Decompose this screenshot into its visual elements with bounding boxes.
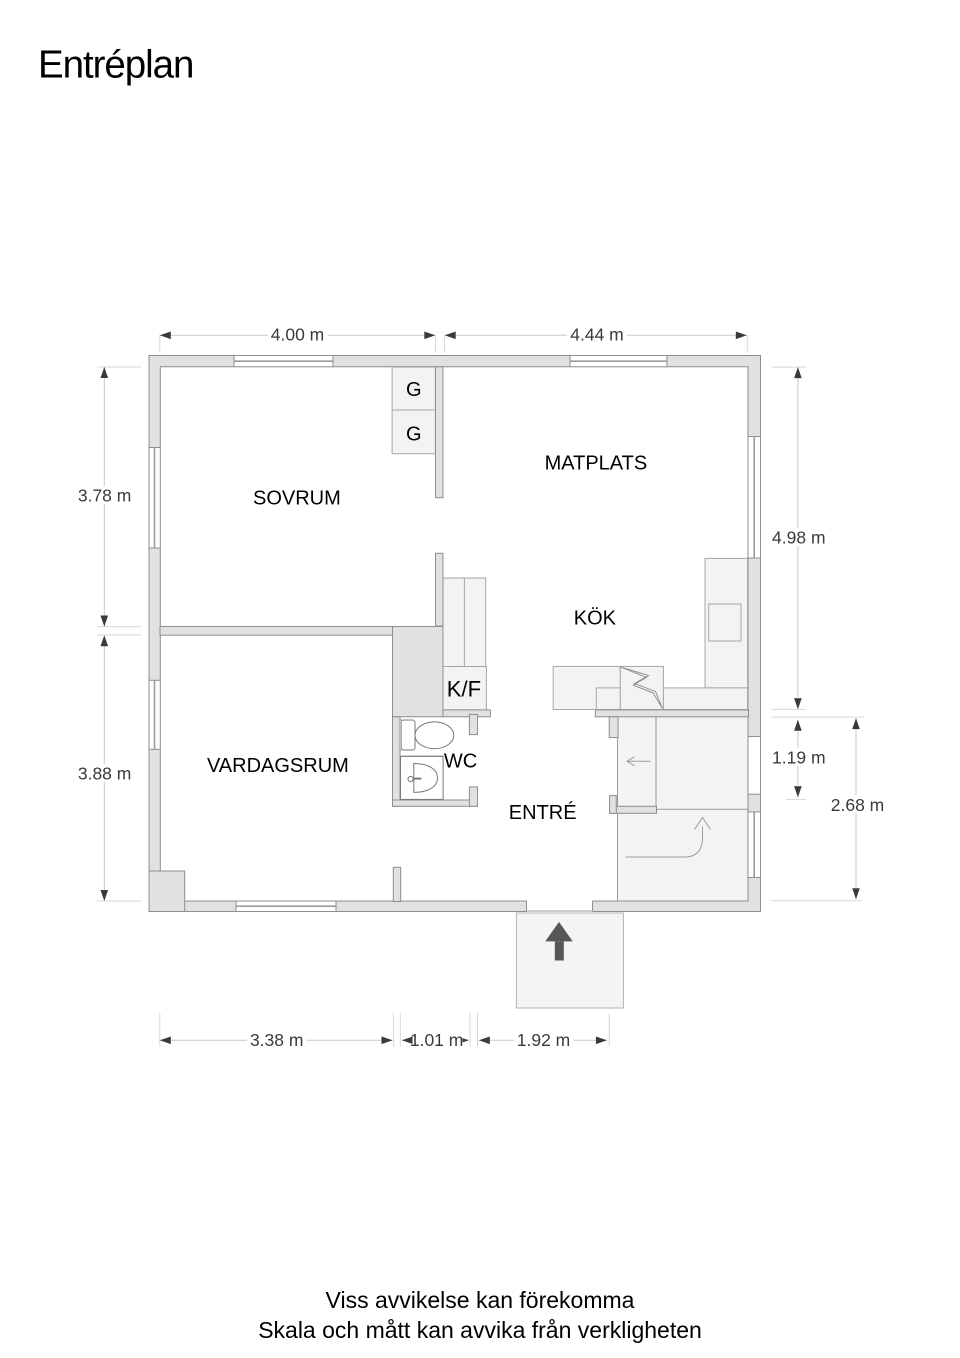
svg-text:K/F: K/F	[447, 676, 481, 701]
svg-text:4.44 m: 4.44 m	[570, 325, 624, 345]
svg-text:VARDAGSRUM: VARDAGSRUM	[207, 755, 349, 777]
svg-text:G: G	[406, 423, 422, 445]
svg-text:1.19 m: 1.19 m	[772, 748, 826, 768]
svg-text:1.92 m: 1.92 m	[517, 1030, 571, 1050]
svg-text:SOVRUM: SOVRUM	[253, 487, 341, 509]
svg-text:G: G	[406, 379, 422, 401]
svg-text:2.68 m: 2.68 m	[831, 795, 885, 815]
svg-text:KÖK: KÖK	[574, 607, 617, 629]
svg-text:3.78 m: 3.78 m	[78, 486, 132, 506]
svg-text:3.88 m: 3.88 m	[78, 764, 132, 784]
svg-text:ENTRÉ: ENTRÉ	[509, 801, 577, 824]
svg-text:Skala och mått kan avvika från: Skala och mått kan avvika från verklighe…	[258, 1317, 702, 1343]
svg-text:Entréplan: Entréplan	[38, 44, 193, 87]
svg-text:4.98 m: 4.98 m	[772, 528, 826, 548]
svg-text:1.01 m: 1.01 m	[410, 1030, 464, 1050]
svg-text:WC: WC	[444, 751, 477, 773]
svg-text:3.38 m: 3.38 m	[250, 1030, 304, 1050]
svg-text:4.00 m: 4.00 m	[271, 325, 325, 345]
svg-text:MATPLATS: MATPLATS	[545, 452, 648, 474]
svg-text:Viss avvikelse kan förekomma: Viss avvikelse kan förekomma	[326, 1287, 635, 1313]
